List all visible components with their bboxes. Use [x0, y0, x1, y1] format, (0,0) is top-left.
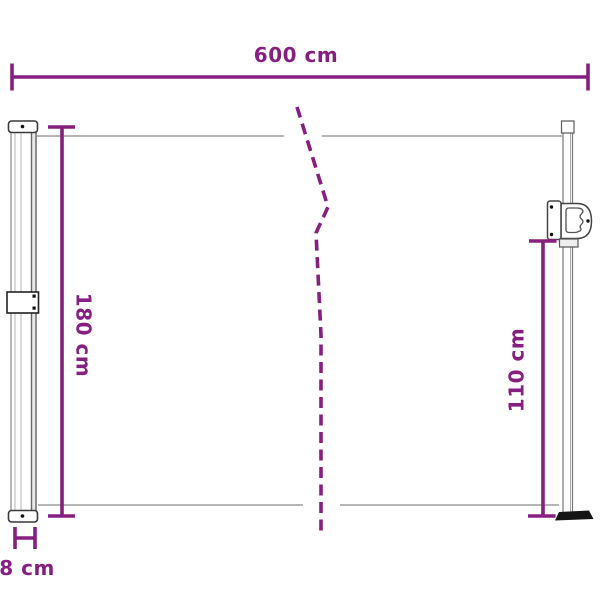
cassette-top-cap: [9, 121, 38, 133]
handle-grip-cutout: [566, 208, 583, 233]
screw-icon: [21, 125, 25, 129]
width-dimension-label: 600 cm: [254, 43, 338, 67]
post-base-plate: [555, 511, 594, 521]
height-total-dimension-label: 180 cm: [72, 293, 96, 377]
cassette-wall-bracket: [7, 292, 39, 313]
width-dimension: [12, 64, 588, 91]
handle-plate: [548, 201, 562, 240]
screw-icon: [550, 233, 553, 236]
screw-icon: [586, 219, 589, 222]
height-front-dimension-label: 110 cm: [505, 328, 529, 412]
screw-icon: [21, 514, 25, 518]
cassette-bottom-cap: [9, 511, 38, 523]
height-front-dimension: [528, 241, 557, 516]
diagram-svg: 600 cm 180 cm 110 cm 8 cm: [0, 0, 600, 600]
screw-icon: [33, 307, 36, 310]
awning-dimension-diagram: 600 cm 180 cm 110 cm 8 cm: [0, 0, 600, 600]
handle-collar: [560, 239, 579, 247]
screw-icon: [33, 295, 36, 298]
screw-icon: [550, 205, 553, 208]
cassette-pole: [7, 121, 39, 522]
post-body: [563, 132, 573, 513]
section-break-line: [297, 107, 328, 531]
depth-dimension-label: 8 cm: [0, 556, 55, 580]
height-total-dimension: [48, 127, 75, 516]
post-top-cap: [562, 121, 575, 133]
depth-dimension: [15, 527, 35, 549]
front-post: [548, 121, 594, 521]
